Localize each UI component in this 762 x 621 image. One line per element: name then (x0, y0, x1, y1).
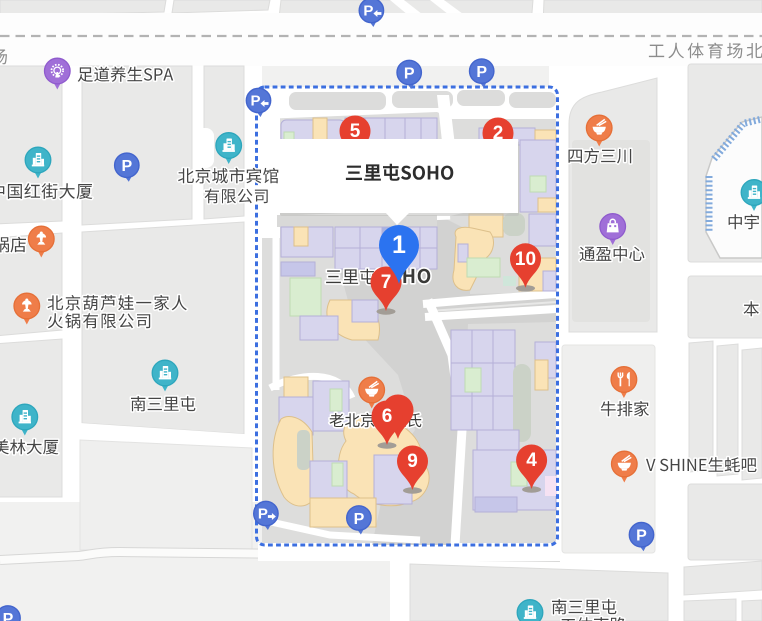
svg-text:10: 10 (515, 249, 536, 270)
svg-text:P: P (404, 65, 415, 82)
svg-text:6: 6 (382, 406, 393, 427)
svg-text:P: P (121, 158, 132, 175)
svg-text:P: P (354, 511, 365, 528)
svg-text:1: 1 (392, 231, 406, 259)
svg-text:P: P (476, 64, 487, 81)
svg-text:P: P (250, 93, 260, 110)
svg-text:9: 9 (407, 451, 418, 472)
svg-text:P: P (3, 611, 14, 621)
svg-text:P: P (258, 506, 268, 523)
svg-text:5: 5 (350, 121, 361, 142)
svg-text:P: P (363, 3, 373, 20)
svg-text:P: P (636, 528, 647, 545)
svg-text:4: 4 (526, 450, 537, 471)
svg-text:7: 7 (381, 272, 392, 293)
